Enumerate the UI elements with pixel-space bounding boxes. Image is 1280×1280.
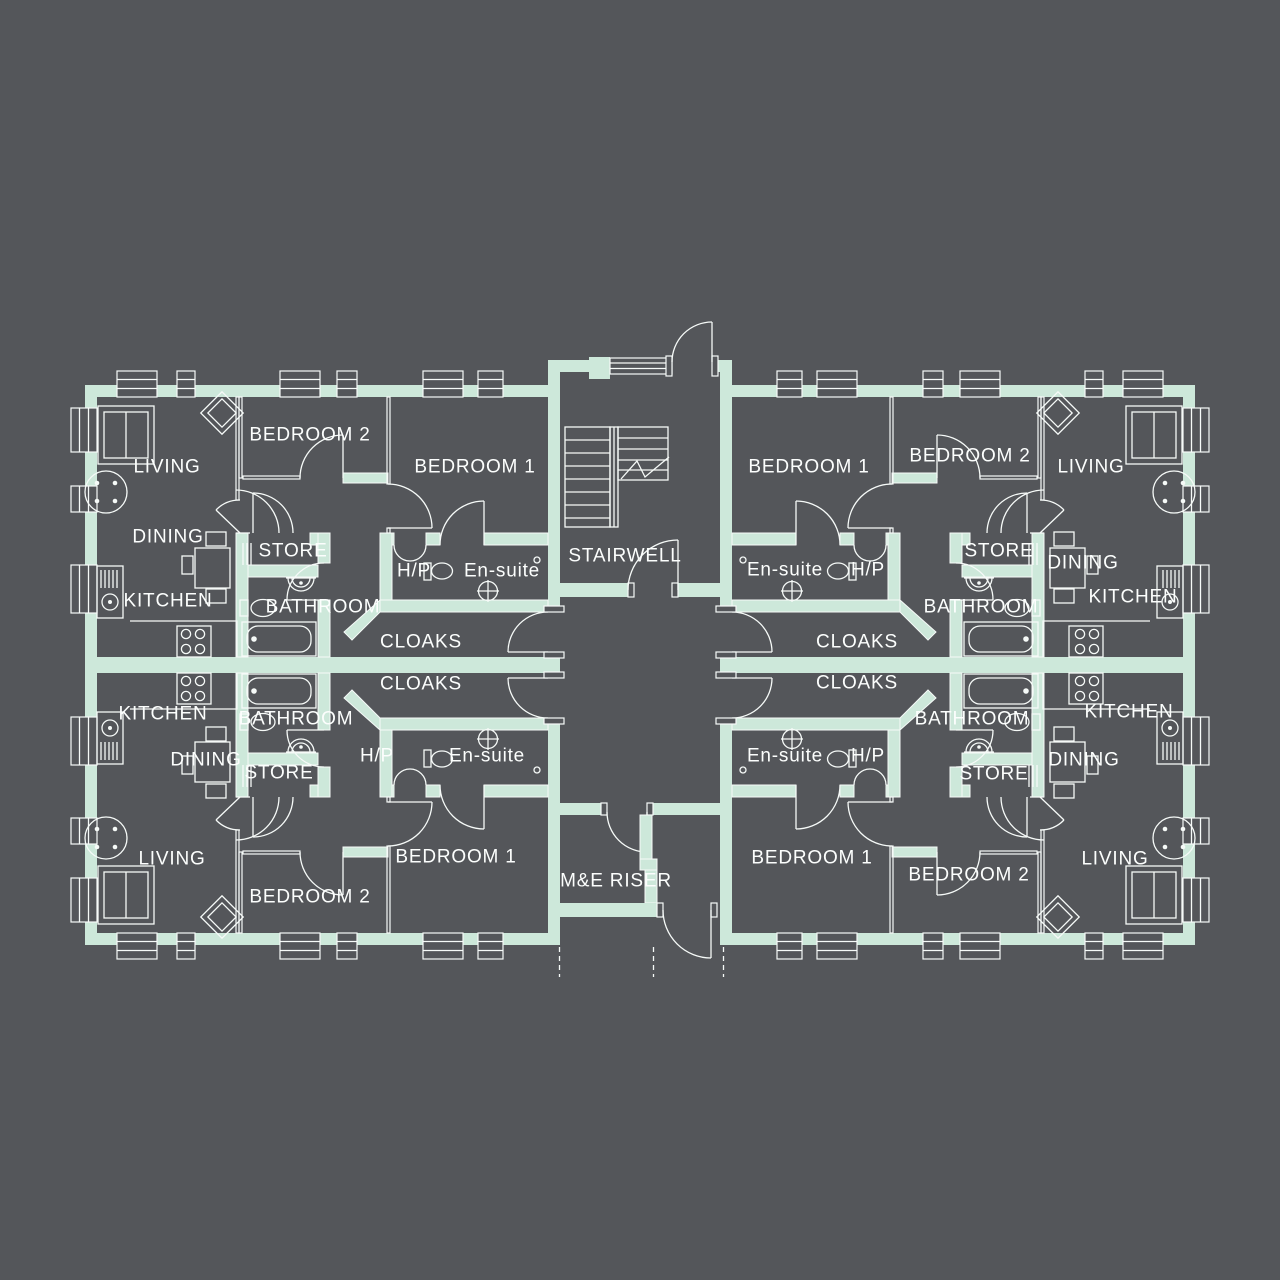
label-ensuite-bottom-right: En-suite bbox=[747, 747, 823, 766]
label-hp-bottom-right: H/P bbox=[851, 747, 885, 766]
label-hp-bottom-left: H/P bbox=[360, 747, 394, 766]
label-bedroom1-bottom-left: BEDROOM 1 bbox=[395, 848, 516, 867]
label-hp-top-left: H/P bbox=[397, 562, 431, 581]
label-dining-top-left: DINING bbox=[132, 528, 203, 547]
apartment-top-right bbox=[716, 371, 1209, 670]
label-cloaks-top-left: CLOAKS bbox=[380, 633, 462, 652]
label-bedroom2-top-right: BEDROOM 2 bbox=[909, 447, 1030, 466]
label-store-top-left: STORE bbox=[258, 542, 327, 561]
label-kitchen-top-left: KITCHEN bbox=[124, 592, 213, 611]
label-ensuite-top-left: En-suite bbox=[464, 562, 540, 581]
label-bathroom-top-right: BATHROOM bbox=[924, 598, 1039, 617]
label-kitchen-bottom-right: KITCHEN bbox=[1085, 703, 1174, 722]
label-stairwell: STAIRWELL bbox=[568, 547, 681, 566]
label-bedroom1-top-left: BEDROOM 1 bbox=[414, 458, 535, 477]
label-store-top-right: STORE bbox=[964, 542, 1033, 561]
label-store-bottom-right: STORE bbox=[959, 765, 1028, 784]
label-dining-top-right: DINING bbox=[1047, 554, 1118, 573]
apartment-top-left bbox=[71, 371, 564, 670]
floor-plan-drawing bbox=[0, 0, 1280, 1280]
label-me-riser: M&E RISER bbox=[560, 872, 672, 891]
label-living-bottom-right: LIVING bbox=[1081, 850, 1148, 869]
label-bedroom2-bottom-left: BEDROOM 2 bbox=[249, 888, 370, 907]
label-bathroom-bottom-right: BATHROOM bbox=[915, 710, 1030, 729]
label-dining-bottom-left: DINING bbox=[170, 751, 241, 770]
label-kitchen-bottom-left: KITCHEN bbox=[119, 705, 208, 724]
label-cloaks-bottom-right: CLOAKS bbox=[816, 674, 898, 693]
label-ensuite-bottom-left: En-suite bbox=[449, 747, 525, 766]
label-hp-top-right: H/P bbox=[851, 561, 885, 580]
label-bedroom1-top-right: BEDROOM 1 bbox=[748, 458, 869, 477]
label-cloaks-top-right: CLOAKS bbox=[816, 633, 898, 652]
label-kitchen-top-right: KITCHEN bbox=[1089, 588, 1178, 607]
label-dining-bottom-right: DINING bbox=[1048, 751, 1119, 770]
label-living-top-right: LIVING bbox=[1057, 458, 1124, 477]
label-ensuite-top-right: En-suite bbox=[747, 561, 823, 580]
label-store-bottom-left: STORE bbox=[244, 764, 313, 783]
label-bathroom-top-left: BATHROOM bbox=[266, 598, 381, 617]
floor-plan-canvas: STAIRWELL M&E RISER LIVING BEDROOM 2 BED… bbox=[0, 0, 1280, 1280]
label-living-bottom-left: LIVING bbox=[138, 850, 205, 869]
label-bedroom2-top-left: BEDROOM 2 bbox=[249, 426, 370, 445]
label-living-top-left: LIVING bbox=[133, 458, 200, 477]
label-cloaks-bottom-left: CLOAKS bbox=[380, 675, 462, 694]
stairs bbox=[565, 427, 669, 527]
label-bedroom2-bottom-right: BEDROOM 2 bbox=[908, 866, 1029, 885]
label-bathroom-bottom-left: BATHROOM bbox=[239, 710, 354, 729]
label-bedroom1-bottom-right: BEDROOM 1 bbox=[751, 849, 872, 868]
